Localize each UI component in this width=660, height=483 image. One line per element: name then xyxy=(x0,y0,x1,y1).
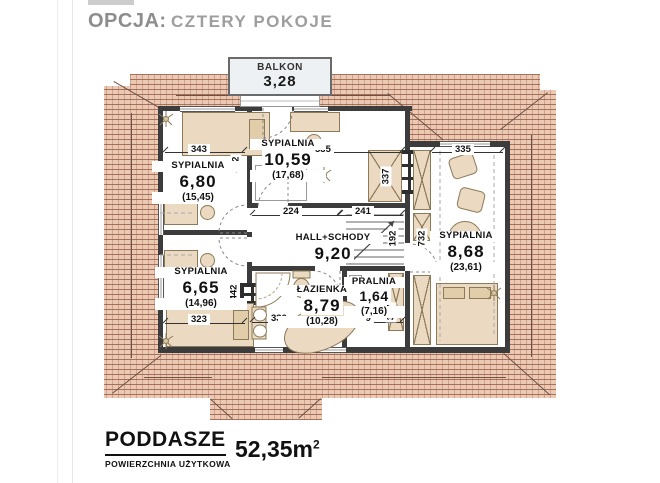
room-gross-area: (14,96) xyxy=(155,298,247,310)
usable-area-label: POWIERZCHNIA UŻYTKOWA xyxy=(105,459,231,469)
roof-ridge xyxy=(131,113,132,358)
top-gray-bar xyxy=(88,0,134,5)
dim-337-top: 337 xyxy=(380,167,391,187)
desk xyxy=(290,112,340,132)
room-name: SYPIALNIA xyxy=(152,161,244,172)
room-sypialnia-868: SYPIALNIA 8,68 (23,61) xyxy=(430,231,502,274)
total-area-exponent: 2 xyxy=(313,437,320,451)
footer-summary: PODDASZE POWIERZCHNIA UŻYTKOWA 52,35m2 xyxy=(105,428,231,469)
total-area-value: 52,35m xyxy=(235,436,313,462)
roof-ridge xyxy=(322,377,506,378)
title-prefix: OPCJA: xyxy=(88,10,167,32)
room-area: 8,79 xyxy=(301,296,342,316)
window xyxy=(255,347,283,353)
chair xyxy=(200,205,215,220)
total-area: 52,35m2 xyxy=(235,436,320,463)
balcony: BALKON 3,28 xyxy=(228,57,332,96)
dim-323: 323 xyxy=(188,314,210,325)
roof-ridge xyxy=(332,95,390,96)
wall-stairs-pralnia xyxy=(347,266,410,271)
room-name: SYPIALNIA xyxy=(430,231,502,242)
room-name: HALL+SCHODY xyxy=(283,233,383,244)
room-sypialnia-680: SYPIALNIA 6,80 (15,45) xyxy=(152,161,244,204)
room-gross-area: (17,68) xyxy=(250,170,326,182)
attic-floor-plan: BALKON 3,28 343 442 535 337 335 224 241 … xyxy=(100,55,560,425)
balcony-area: 3,28 xyxy=(230,73,330,90)
room-area: 6,65 xyxy=(180,278,221,298)
room-name: SYPIALNIA xyxy=(155,267,247,278)
room-sypialnia-1059: SYPIALNIA 10,59 (17,68) xyxy=(250,139,326,182)
title-variant: CZTERY POKOJE xyxy=(171,12,333,31)
door-opening-right-room xyxy=(405,243,410,271)
wall-between-left-bedrooms xyxy=(160,230,247,235)
roof-ridge xyxy=(176,95,230,96)
room-area: 8,68 xyxy=(445,242,486,262)
wardrobe xyxy=(413,150,431,210)
room-name: SYPIALNIA xyxy=(250,139,326,150)
page-edge-line xyxy=(57,0,58,483)
room-gross-area: (23,61) xyxy=(430,262,502,274)
dim-224: 224 xyxy=(280,206,302,217)
room-area: 10,59 xyxy=(262,150,314,170)
room-gross-area: (7,16) xyxy=(344,306,404,318)
window xyxy=(318,347,346,353)
door-opening-bathroom xyxy=(315,266,340,271)
room-area: 6,80 xyxy=(177,172,218,192)
floor-plan-page: OPCJA: CZTERY POKOJE xyxy=(0,0,660,483)
dim-192: 192 xyxy=(387,229,398,249)
room-gross-area: (10,28) xyxy=(278,316,366,328)
wardrobe xyxy=(413,275,431,345)
roof-ridge xyxy=(144,377,212,378)
dim-335: 335 xyxy=(452,144,474,155)
page-title: OPCJA: CZTERY POKOJE xyxy=(88,10,333,33)
level-name: PODDASZE xyxy=(105,428,226,456)
door-opening-left-bottom xyxy=(247,237,252,262)
balcony-floor xyxy=(240,96,320,107)
desk xyxy=(164,203,198,225)
dim-241: 241 xyxy=(352,206,374,217)
balcony-name: BALKON xyxy=(230,62,330,73)
dim-343: 343 xyxy=(188,144,210,155)
dim-732: 732 xyxy=(416,229,427,249)
room-gross-area: (15,45) xyxy=(152,192,244,204)
bed xyxy=(436,283,498,345)
room-name: PRALNIA xyxy=(344,277,404,288)
room-hall-schody: HALL+SCHODY 9,20 xyxy=(283,233,383,264)
page-edge-line xyxy=(72,0,73,483)
roof-ridge xyxy=(531,135,532,357)
wall-right xyxy=(505,141,510,353)
room-area: 9,20 xyxy=(312,244,353,264)
room-sypialnia-665: SYPIALNIA 6,65 (14,96) xyxy=(155,267,247,310)
room-pralnia: PRALNIA 1,64 (7,16) xyxy=(344,277,404,318)
room-area: 1,64 xyxy=(357,288,390,304)
